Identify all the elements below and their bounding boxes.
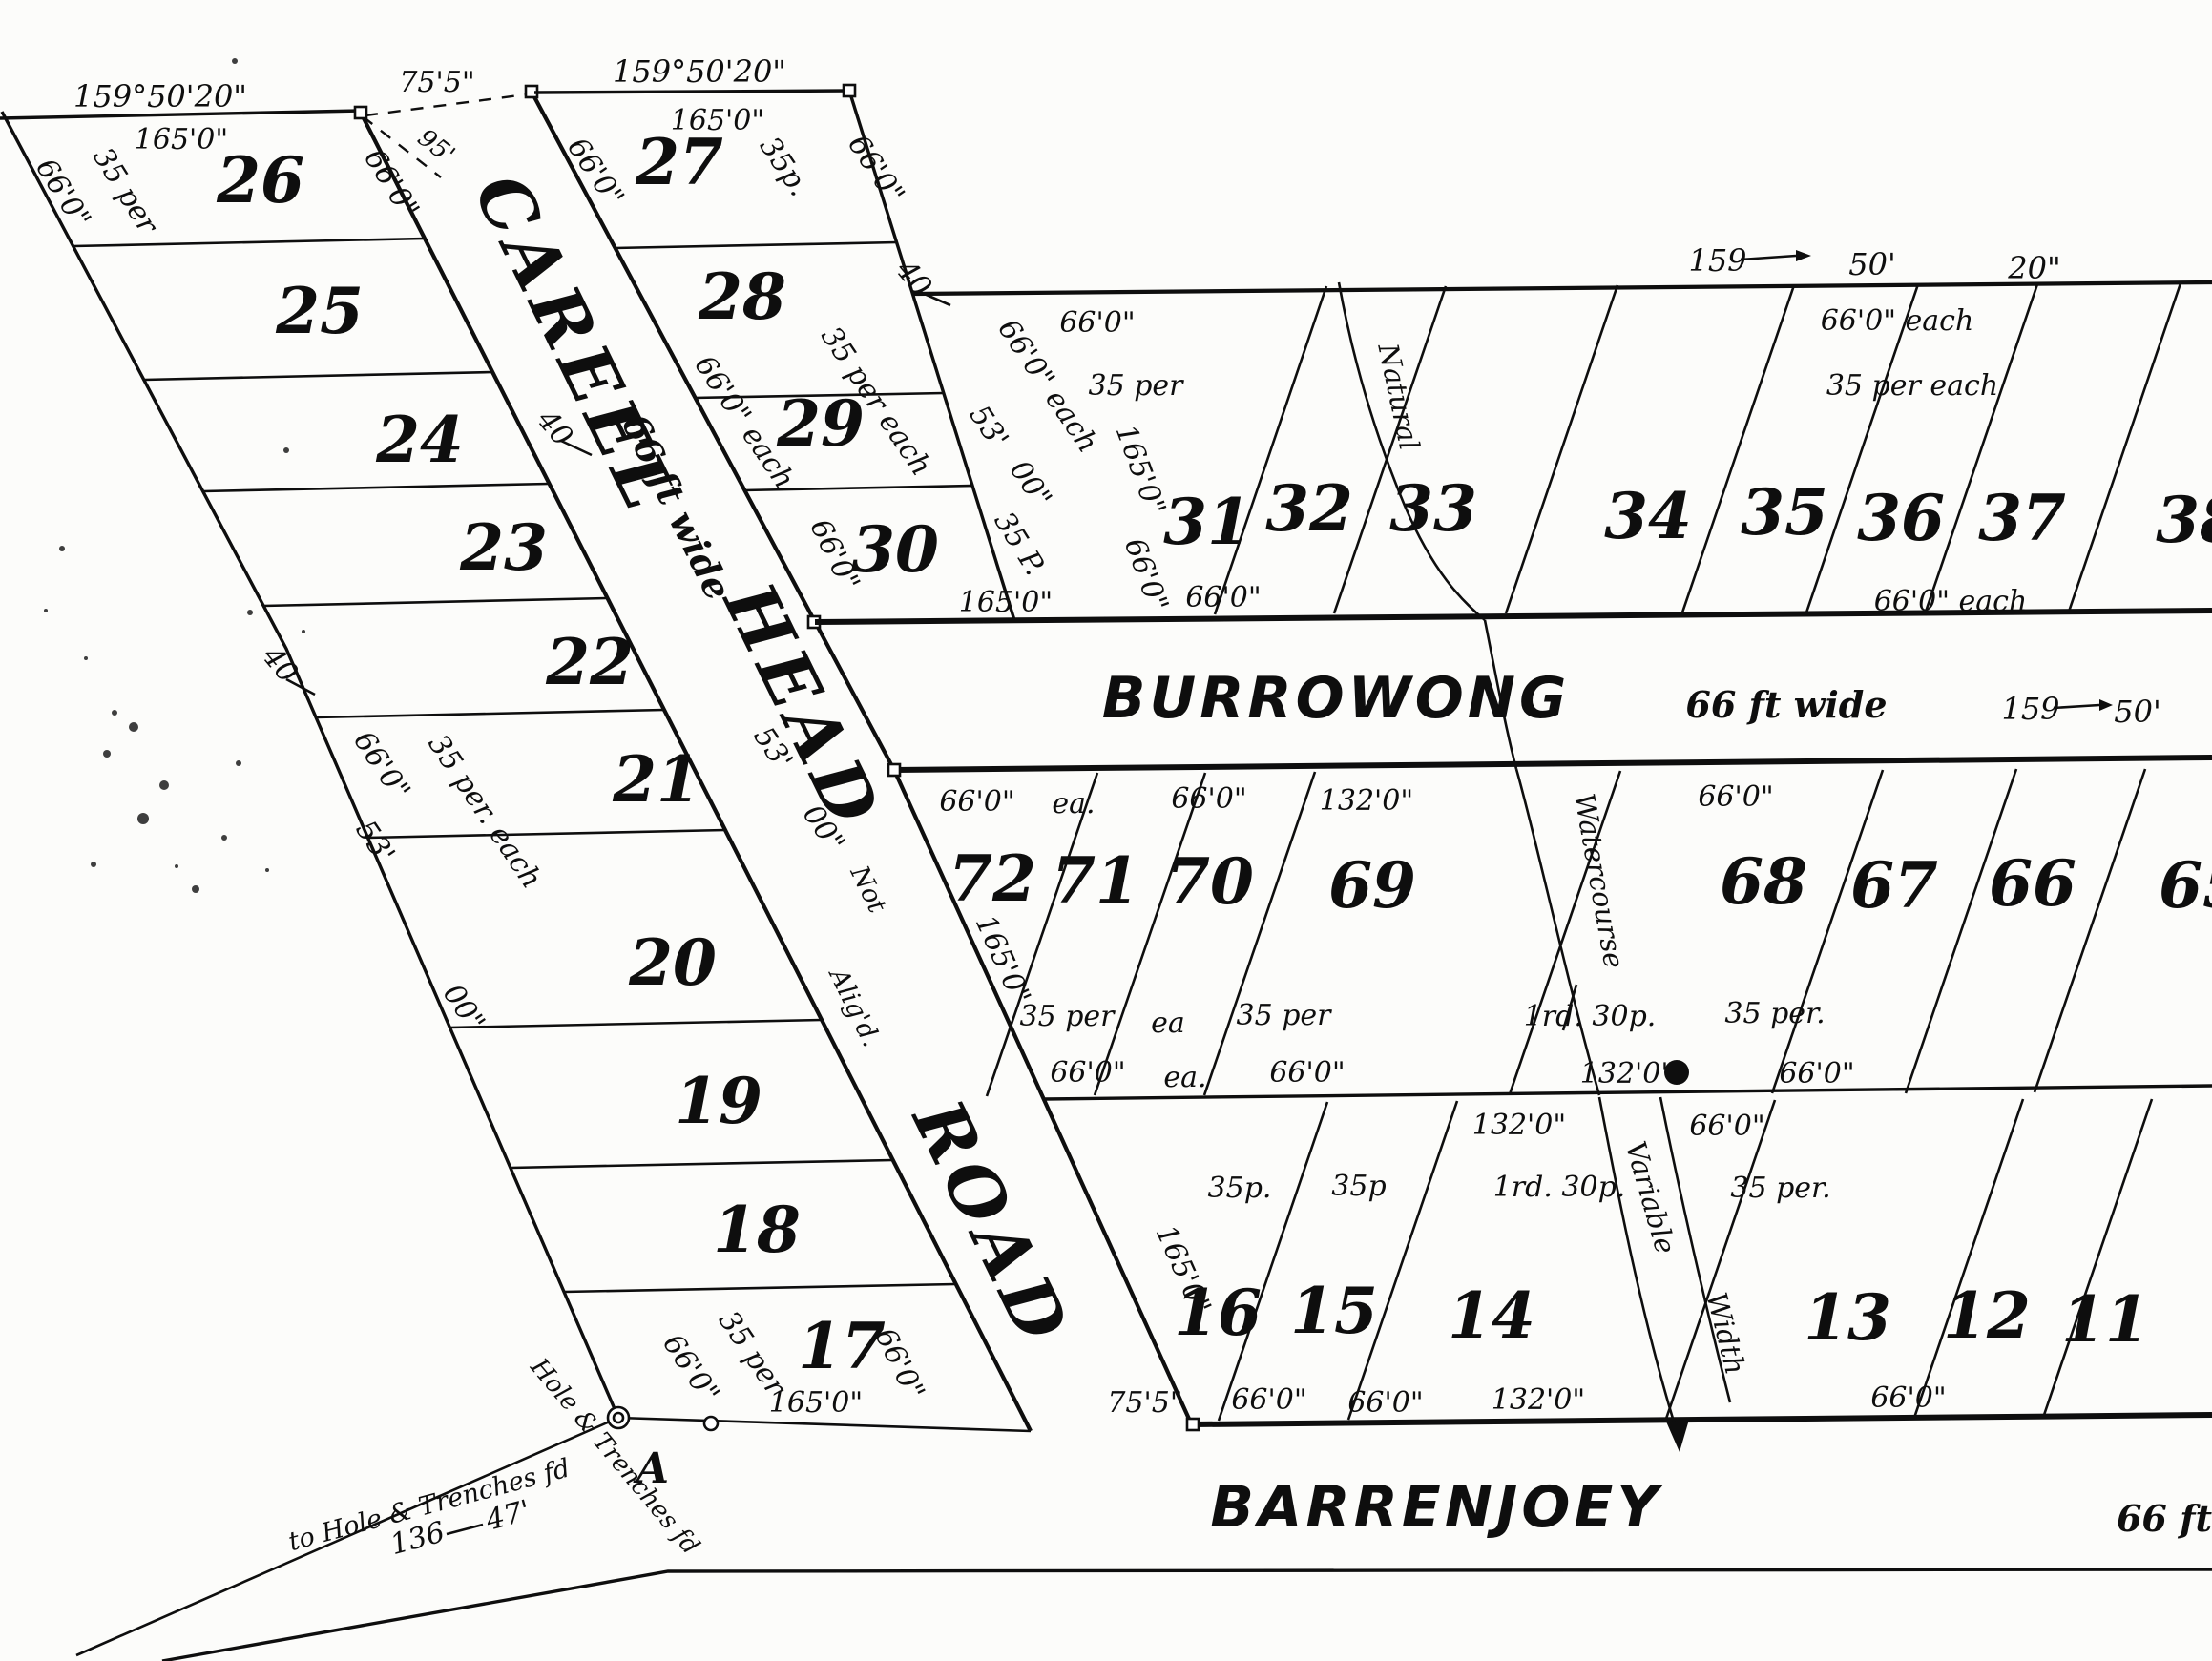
lot-number-36: 36 bbox=[1857, 481, 1945, 555]
bearing-label: 159°50'20" bbox=[613, 53, 786, 90]
lot-boundary-line bbox=[1914, 1099, 2023, 1418]
dimension-label: 66'0" bbox=[346, 725, 416, 806]
area-label: 35 per bbox=[1088, 369, 1184, 403]
dimension-label: 165'0" bbox=[769, 1386, 863, 1420]
lot-boundary-line bbox=[615, 242, 897, 248]
dimension-label: 66'0" bbox=[1698, 780, 1773, 814]
lot-number-18: 18 bbox=[713, 1193, 801, 1267]
speck bbox=[192, 885, 199, 893]
north-row-lots-block: 159 50' 20" 66'0" 35 per 165'0" 66'0" 66… bbox=[913, 242, 2212, 618]
watercourse-label-width: Width bbox=[1701, 1289, 1752, 1378]
area-label: 35p. bbox=[1208, 1172, 1272, 1205]
speck bbox=[84, 656, 88, 660]
speck bbox=[137, 813, 149, 824]
area-label: 35 P. bbox=[987, 506, 1051, 581]
lot-number-38: 38 bbox=[2156, 483, 2212, 557]
lot-boundary-line bbox=[203, 484, 549, 491]
dimension-label: 53' bbox=[348, 815, 401, 870]
survey-marker bbox=[355, 107, 366, 118]
lot-number-31: 31 bbox=[1163, 485, 1251, 559]
bearing-label: 50' bbox=[2114, 694, 2161, 730]
dimension-label: 132'0" bbox=[1320, 784, 1413, 818]
dimension-label: 66'0" bbox=[939, 785, 1014, 819]
dimension-label: 66'0" bbox=[1231, 1383, 1306, 1417]
lot-number-33: 33 bbox=[1389, 471, 1477, 546]
dimension-label: 66'0" bbox=[1269, 1056, 1345, 1090]
speck bbox=[232, 58, 238, 64]
dimension-label: 66'0" bbox=[656, 1328, 725, 1409]
lot-number-23: 23 bbox=[459, 510, 548, 585]
lot-number-34: 34 bbox=[1604, 479, 1692, 553]
speck bbox=[265, 868, 269, 872]
bearing-label: 20" bbox=[2007, 250, 2060, 286]
bearing-label: 159 bbox=[1688, 242, 1746, 279]
bearing-arrow-icon bbox=[2099, 699, 2113, 711]
survey-marker bbox=[844, 85, 855, 96]
lot-boundary-line bbox=[1204, 772, 1315, 1095]
area-label: 35p bbox=[1331, 1170, 1386, 1203]
lot-boundary-line bbox=[564, 1284, 955, 1292]
lot-number-70: 70 bbox=[1166, 844, 1254, 919]
dimension-label: 66'0" bbox=[1171, 782, 1246, 816]
l1ot-boundary-line bbox=[316, 710, 664, 717]
area-label: 1rd. 30p. bbox=[1493, 1171, 1626, 1204]
watercourse-arrow-icon bbox=[1666, 1420, 1689, 1452]
speck bbox=[103, 750, 111, 758]
area-label: ea. bbox=[1163, 1061, 1206, 1094]
lot-boundary-line bbox=[2035, 769, 2145, 1092]
dimension-label: 53' bbox=[962, 400, 1014, 455]
speck bbox=[175, 864, 178, 868]
lot-number-27: 27 bbox=[635, 125, 723, 199]
barrenjoey-road-name: BARRENJOEY bbox=[1210, 1474, 1663, 1541]
speck bbox=[59, 546, 65, 551]
corner-annotations: to Hole & Trenches fd 136 47' Hole & Tre… bbox=[76, 1353, 718, 1655]
burrowong-south-edge bbox=[894, 758, 2212, 770]
area-label: ea bbox=[1151, 1007, 1185, 1040]
lot-boundary-line bbox=[144, 372, 492, 380]
dimension-label: 66'0" bbox=[29, 153, 97, 235]
speck bbox=[247, 610, 253, 615]
barrenjoey-south-edge bbox=[162, 1569, 2212, 1661]
bearing-dash bbox=[2054, 705, 2099, 708]
corner-note-label: Hole & Trenches fd bbox=[524, 1353, 705, 1561]
lot-number-26: 26 bbox=[216, 143, 304, 218]
area-label: 35 per bbox=[86, 142, 165, 241]
lot-boundary-line bbox=[1906, 769, 2016, 1093]
speck bbox=[221, 835, 227, 841]
area-label: 35 per. bbox=[1730, 1172, 1830, 1205]
dimension-label: 00" bbox=[436, 978, 491, 1038]
lot-number-22: 22 bbox=[545, 625, 634, 699]
survey-marker bbox=[614, 1413, 623, 1422]
survey-plan-drawing: 159°50'20" 165'0" 35 per 66'0" 66'0" 26 … bbox=[0, 0, 2212, 1661]
lot-boundary-line bbox=[2069, 283, 2181, 612]
lot-boundary-line bbox=[1095, 773, 1205, 1095]
watercourse-line bbox=[1339, 282, 1485, 620]
lot-boundary-line bbox=[263, 598, 607, 606]
dimension-label: 66'0" bbox=[1185, 581, 1261, 614]
ink-blot bbox=[1664, 1060, 1689, 1085]
lot-number-68: 68 bbox=[1720, 844, 1807, 919]
dimension-label: 165'0" bbox=[135, 123, 228, 156]
dimension-label: 00" bbox=[1003, 454, 1058, 514]
lot-number-72: 72 bbox=[949, 841, 1036, 916]
area-label: 35 per bbox=[1019, 1000, 1116, 1033]
lot-number-37: 37 bbox=[1978, 481, 2066, 555]
dimension-label: 132'0" bbox=[1472, 1109, 1566, 1142]
lot-boundary-line bbox=[1215, 286, 1326, 614]
lot-boundary-line bbox=[73, 239, 425, 246]
lot-number-19: 19 bbox=[675, 1064, 762, 1138]
lot-number-35: 35 bbox=[1741, 475, 1828, 550]
dimension-label: 66'0" bbox=[1347, 1386, 1423, 1420]
lot-boundary-line bbox=[511, 1160, 892, 1168]
survey-plan-page: 159°50'20" 165'0" 35 per 66'0" 66'0" 26 … bbox=[0, 0, 2212, 1661]
lot-number-13: 13 bbox=[1804, 1280, 1891, 1355]
lot-17-south-boundary bbox=[618, 1418, 1031, 1431]
area-label: ea. bbox=[1052, 787, 1095, 820]
dimension-label: 132'0" bbox=[1492, 1383, 1585, 1417]
bearing-arrow-icon bbox=[1796, 250, 1811, 261]
dimension-label: 75'5" bbox=[399, 66, 474, 99]
lot-number-12: 12 bbox=[1943, 1278, 2031, 1353]
dimension-label: 66'0" each bbox=[1821, 304, 1974, 338]
area-label: 35p. bbox=[753, 131, 816, 202]
bearing-dash bbox=[447, 1525, 483, 1534]
lot-number-65: 65 bbox=[2159, 848, 2212, 923]
speck bbox=[236, 760, 241, 766]
speck bbox=[91, 862, 96, 867]
barrenjoey-north-edge bbox=[1193, 1415, 2212, 1424]
lot-number-20: 20 bbox=[628, 925, 717, 1000]
lot-number-30: 30 bbox=[851, 512, 939, 587]
watercourse-label: Watercourse bbox=[1568, 791, 1631, 971]
speck bbox=[302, 630, 305, 633]
bearing-label: 159°50'20" bbox=[73, 78, 247, 114]
lot-boundary-line bbox=[2043, 1099, 2152, 1418]
lot-number-25: 25 bbox=[275, 274, 364, 348]
area-label: 35 per. bbox=[1724, 997, 1825, 1030]
area-label: 35 per each bbox=[1826, 369, 1998, 403]
lot-number-71: 71 bbox=[1052, 843, 1139, 918]
lot-boundary-line bbox=[1348, 1101, 1457, 1420]
barrenjoey-road: BARRENJOEY 66 ft bbox=[162, 1415, 2212, 1661]
survey-marker bbox=[888, 764, 900, 776]
lot-boundary-line bbox=[1772, 770, 1883, 1093]
lot-number-15: 15 bbox=[1290, 1274, 1378, 1348]
road-column-lots-block: 159°50'20" 165'0" 27 35p. 66'0" 66'0" 28… bbox=[534, 53, 1104, 628]
bearing-label: 40 bbox=[255, 639, 304, 690]
barrenjoey-width-label: 66 ft bbox=[2117, 1497, 2212, 1540]
lot-number-14: 14 bbox=[1448, 1278, 1535, 1353]
dimension-label: 66'0" bbox=[1059, 306, 1135, 340]
area-label: 1rd. 30p. bbox=[1524, 1000, 1657, 1033]
lot-number-32: 32 bbox=[1265, 471, 1353, 546]
area-label: 35 per bbox=[1236, 999, 1332, 1032]
lot-number-24: 24 bbox=[375, 403, 464, 477]
lot-boundary-line bbox=[1219, 1102, 1327, 1421]
burrowong-width-label: 66 ft wide bbox=[1685, 683, 1887, 726]
speck bbox=[112, 710, 117, 716]
bearing-label: 50' bbox=[1848, 246, 1896, 282]
lot-boundary-line bbox=[367, 830, 725, 838]
survey-marker bbox=[704, 1417, 718, 1430]
corner-point-letter: A bbox=[633, 1444, 669, 1493]
survey-marker bbox=[1187, 1419, 1199, 1430]
dimension-label: 66'0" bbox=[357, 143, 426, 225]
dimension-label: 66'0" bbox=[1779, 1057, 1854, 1090]
dimension-label: 66'0" bbox=[1689, 1110, 1764, 1143]
speck bbox=[283, 447, 289, 453]
lot-number-67: 67 bbox=[1850, 848, 1938, 923]
lot-number-11: 11 bbox=[2061, 1282, 2149, 1357]
lot-number-16: 16 bbox=[1174, 1276, 1262, 1350]
dimension-label: 66'0" bbox=[1050, 1056, 1125, 1090]
lot-boundary-line bbox=[1682, 285, 1794, 612]
lot-number-66: 66 bbox=[1989, 846, 2076, 921]
dimension-label: 66'0" bbox=[841, 129, 910, 210]
bearing-dash bbox=[1741, 256, 1796, 260]
speck bbox=[129, 722, 138, 732]
lot-boundary-line bbox=[1506, 285, 1617, 613]
dimension-label: 165'0" bbox=[959, 586, 1053, 619]
lot-number-28: 28 bbox=[698, 260, 786, 334]
speck bbox=[159, 780, 169, 790]
lot-27-north-boundary bbox=[534, 91, 849, 93]
dimension-label: 66'0" bbox=[1870, 1381, 1946, 1415]
dimension-label: 75'5" bbox=[1107, 1386, 1182, 1420]
road-alignment-note: Not bbox=[844, 861, 892, 918]
dimension-label: 66'0" bbox=[560, 132, 630, 213]
lot-number-29: 29 bbox=[776, 386, 865, 461]
burrowong-street: BURROWONG 66 ft wide 159 50' bbox=[815, 611, 2212, 776]
dimension-label: 95' bbox=[412, 123, 460, 169]
bearing-label: 159 bbox=[2001, 691, 2059, 727]
area-label: 35 per. each bbox=[421, 729, 548, 895]
lot-boundary-line bbox=[449, 1020, 822, 1028]
lot-number-69: 69 bbox=[1328, 848, 1416, 923]
careel-head-road-name-head: HEAD bbox=[706, 569, 896, 842]
speck bbox=[44, 609, 48, 612]
